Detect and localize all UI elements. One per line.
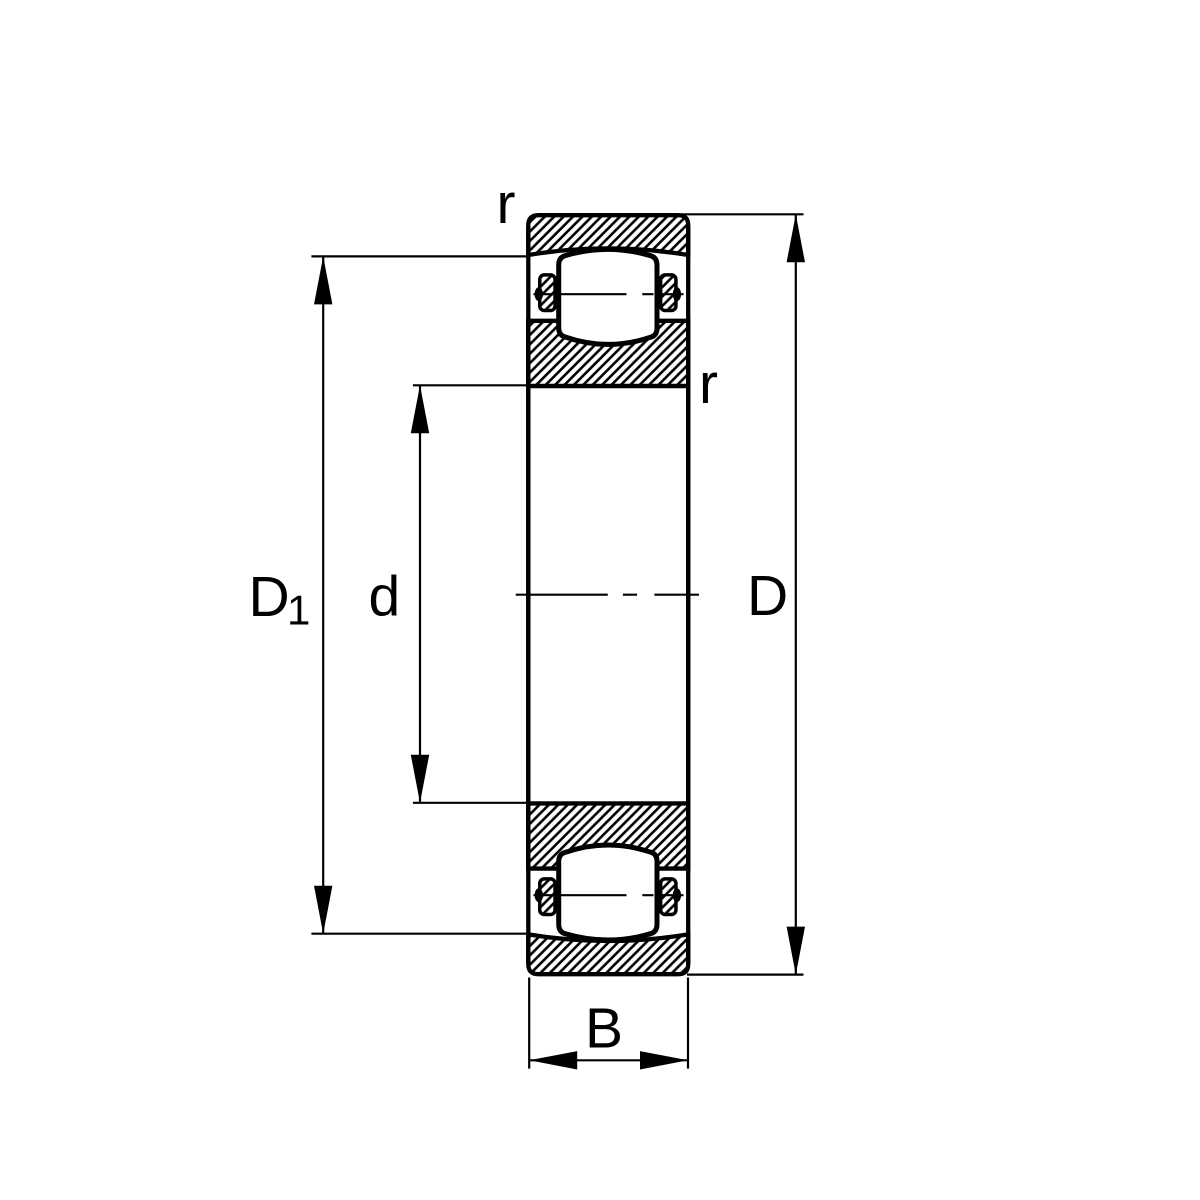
svg-text:B: B <box>585 997 623 1061</box>
svg-text:d: d <box>369 565 401 629</box>
svg-text:D: D <box>249 565 290 629</box>
svg-text:r: r <box>497 172 516 236</box>
svg-text:1: 1 <box>287 586 310 633</box>
svg-text:D: D <box>747 564 788 628</box>
svg-text:r: r <box>699 352 718 416</box>
